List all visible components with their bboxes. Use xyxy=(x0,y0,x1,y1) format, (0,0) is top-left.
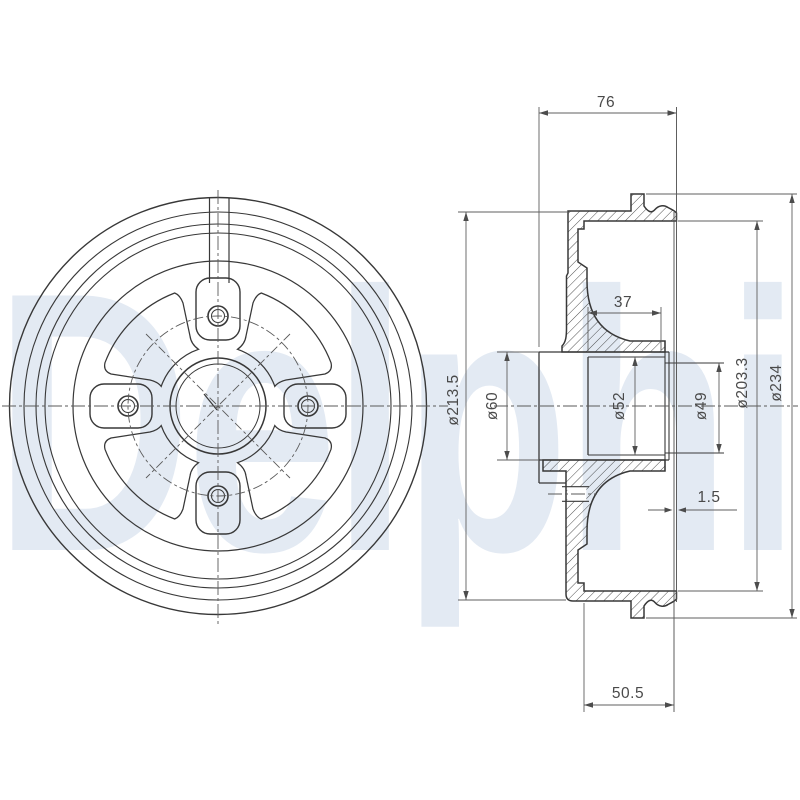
dim-outer-diameter: ø213.5 xyxy=(445,374,462,425)
dim-lip-gap: 1.5 xyxy=(697,489,720,506)
dim-drum-depth: 50.5 xyxy=(612,685,644,702)
dim-hub-protrusion: 37 xyxy=(614,294,632,311)
dim-braking-surface-diameter: ø203.3 xyxy=(734,357,751,408)
drum-mouth-lines xyxy=(674,107,677,712)
section-view xyxy=(494,107,798,712)
brake-drum-drawing: 76 37 1.5 50.5 ø213.5 ø60 ø52 ø49 ø203.3… xyxy=(0,0,800,800)
center-mark xyxy=(204,394,217,410)
section-slot-lines xyxy=(210,198,230,283)
dim-overall-width: 76 xyxy=(597,94,615,111)
technical-drawing-page: Delphi xyxy=(0,0,800,800)
dim-bore-diameter: ø52 xyxy=(611,392,628,420)
front-view xyxy=(2,190,448,624)
dim-flange-diameter: ø234 xyxy=(768,364,785,401)
casting-section-bottom xyxy=(543,460,677,618)
casting-section-top xyxy=(562,194,677,352)
dimension-labels: 76 37 1.5 50.5 ø213.5 ø60 ø52 ø49 ø203.3… xyxy=(445,94,785,702)
front-centerlines xyxy=(2,190,448,624)
dim-hub-outer-diameter: ø60 xyxy=(484,392,501,420)
dim-pilot-bore-diameter: ø49 xyxy=(693,392,710,420)
